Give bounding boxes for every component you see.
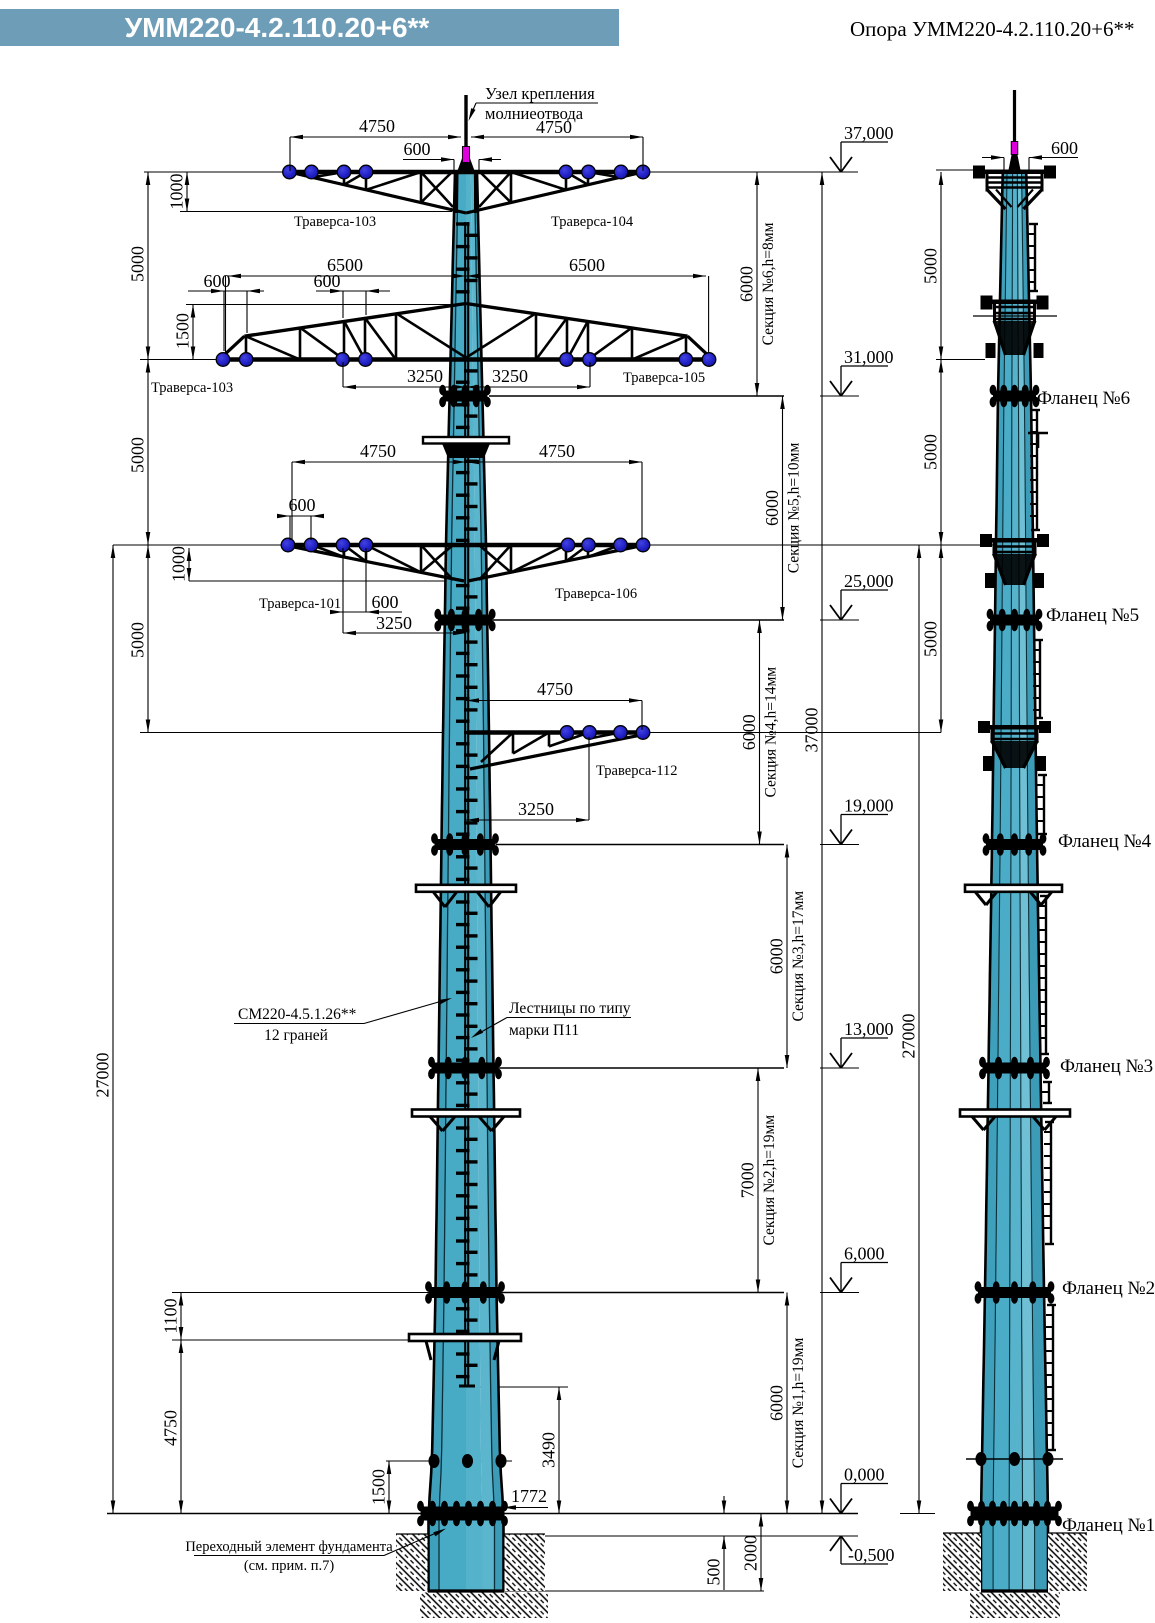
svg-text:УММ220-4.2.110.20+6**: УММ220-4.2.110.20+6**: [125, 12, 430, 43]
svg-text:Траверса-103: Траверса-103: [294, 214, 376, 230]
svg-text:Опора УММ220-4.2.110.20+6**: Опора УММ220-4.2.110.20+6**: [850, 17, 1135, 41]
svg-text:3250: 3250: [376, 613, 412, 633]
svg-text:Секция №3,h=17мм: Секция №3,h=17мм: [790, 891, 807, 1022]
svg-text:25,000: 25,000: [844, 571, 894, 591]
svg-text:Секция №2,h=19мм: Секция №2,h=19мм: [761, 1115, 778, 1246]
svg-text:2000: 2000: [741, 1535, 761, 1571]
svg-text:Секция №5,h=10мм: Секция №5,h=10мм: [786, 443, 803, 574]
svg-text:13,000: 13,000: [844, 1019, 894, 1039]
svg-text:3250: 3250: [407, 366, 443, 386]
svg-text:31,000: 31,000: [844, 347, 894, 367]
svg-text:4750: 4750: [360, 441, 396, 461]
svg-text:5000: 5000: [921, 248, 941, 284]
svg-text:27000: 27000: [93, 1053, 113, 1098]
svg-text:6000: 6000: [767, 1385, 787, 1421]
svg-text:27000: 27000: [899, 1014, 919, 1059]
svg-text:7000: 7000: [738, 1162, 758, 1198]
svg-text:19,000: 19,000: [844, 796, 894, 816]
svg-text:600: 600: [289, 495, 316, 515]
svg-text:Секция №1,h=19мм: Секция №1,h=19мм: [790, 1338, 807, 1469]
svg-text:Секция №4,h=14мм: Секция №4,h=14мм: [763, 667, 780, 798]
svg-text:1500: 1500: [173, 313, 193, 349]
svg-text:Траверса-101: Траверса-101: [259, 596, 341, 612]
svg-text:Фланец №3: Фланец №3: [1060, 1056, 1153, 1077]
svg-text:600: 600: [1051, 138, 1078, 158]
svg-text:Переходный элемент фундамента: Переходный элемент фундамента: [185, 1539, 393, 1555]
svg-text:1100: 1100: [161, 1298, 181, 1333]
svg-text:Траверса-103: Траверса-103: [151, 380, 233, 396]
svg-text:1772: 1772: [511, 1486, 547, 1506]
svg-text:5000: 5000: [921, 621, 941, 657]
svg-text:5000: 5000: [128, 246, 148, 282]
svg-text:37,000: 37,000: [844, 123, 894, 143]
svg-text:1000: 1000: [169, 546, 189, 582]
svg-text:1500: 1500: [369, 1469, 389, 1505]
svg-text:600: 600: [314, 271, 341, 291]
svg-text:Фланец №4: Фланец №4: [1058, 831, 1152, 852]
svg-text:600: 600: [372, 592, 399, 612]
svg-text:500: 500: [704, 1559, 724, 1586]
svg-text:марки П11: марки П11: [509, 1022, 579, 1039]
svg-text:4750: 4750: [161, 1410, 181, 1446]
svg-text:6000: 6000: [737, 266, 757, 302]
svg-text:Траверса-112: Траверса-112: [596, 763, 678, 779]
svg-text:Траверса-106: Траверса-106: [555, 586, 637, 602]
svg-text:Фланец №6: Фланец №6: [1037, 388, 1130, 409]
svg-text:Фланец №1: Фланец №1: [1062, 1515, 1155, 1536]
svg-text:600: 600: [204, 271, 231, 291]
svg-text:Траверса-104: Траверса-104: [551, 214, 634, 230]
svg-text:3250: 3250: [518, 799, 554, 819]
svg-text:-0,500: -0,500: [848, 1545, 895, 1565]
svg-text:600: 600: [404, 139, 431, 159]
svg-text:5000: 5000: [128, 437, 148, 473]
svg-text:Секция №6,h=8мм: Секция №6,h=8мм: [760, 222, 777, 345]
svg-text:3250: 3250: [492, 366, 528, 386]
svg-text:5000: 5000: [128, 622, 148, 658]
svg-text:0,000: 0,000: [844, 1465, 885, 1485]
svg-text:СМ220-4.5.1.26**: СМ220-4.5.1.26**: [238, 1006, 357, 1023]
svg-text:(см. прим. п.7): (см. прим. п.7): [244, 1558, 335, 1574]
svg-text:Фланец №2: Фланец №2: [1062, 1278, 1155, 1299]
svg-text:4750: 4750: [537, 679, 573, 699]
svg-text:4750: 4750: [536, 117, 572, 137]
svg-text:6,000: 6,000: [844, 1244, 885, 1264]
svg-text:12 граней: 12 граней: [264, 1027, 328, 1044]
svg-text:6000: 6000: [739, 714, 759, 750]
svg-text:1000: 1000: [167, 174, 187, 210]
svg-text:6000: 6000: [762, 490, 782, 526]
svg-text:4750: 4750: [359, 116, 395, 136]
svg-text:4750: 4750: [539, 441, 575, 461]
svg-text:37000: 37000: [802, 708, 822, 753]
svg-text:3490: 3490: [539, 1432, 559, 1468]
svg-text:6500: 6500: [569, 255, 605, 275]
svg-text:5000: 5000: [921, 434, 941, 470]
svg-text:Фланец №5: Фланец №5: [1046, 605, 1139, 626]
svg-text:Лестницы по типу: Лестницы по типу: [509, 1000, 631, 1017]
svg-text:6000: 6000: [767, 938, 787, 974]
svg-text:Траверса-105: Траверса-105: [623, 370, 705, 386]
svg-text:Узел крепления: Узел крепления: [485, 84, 595, 103]
